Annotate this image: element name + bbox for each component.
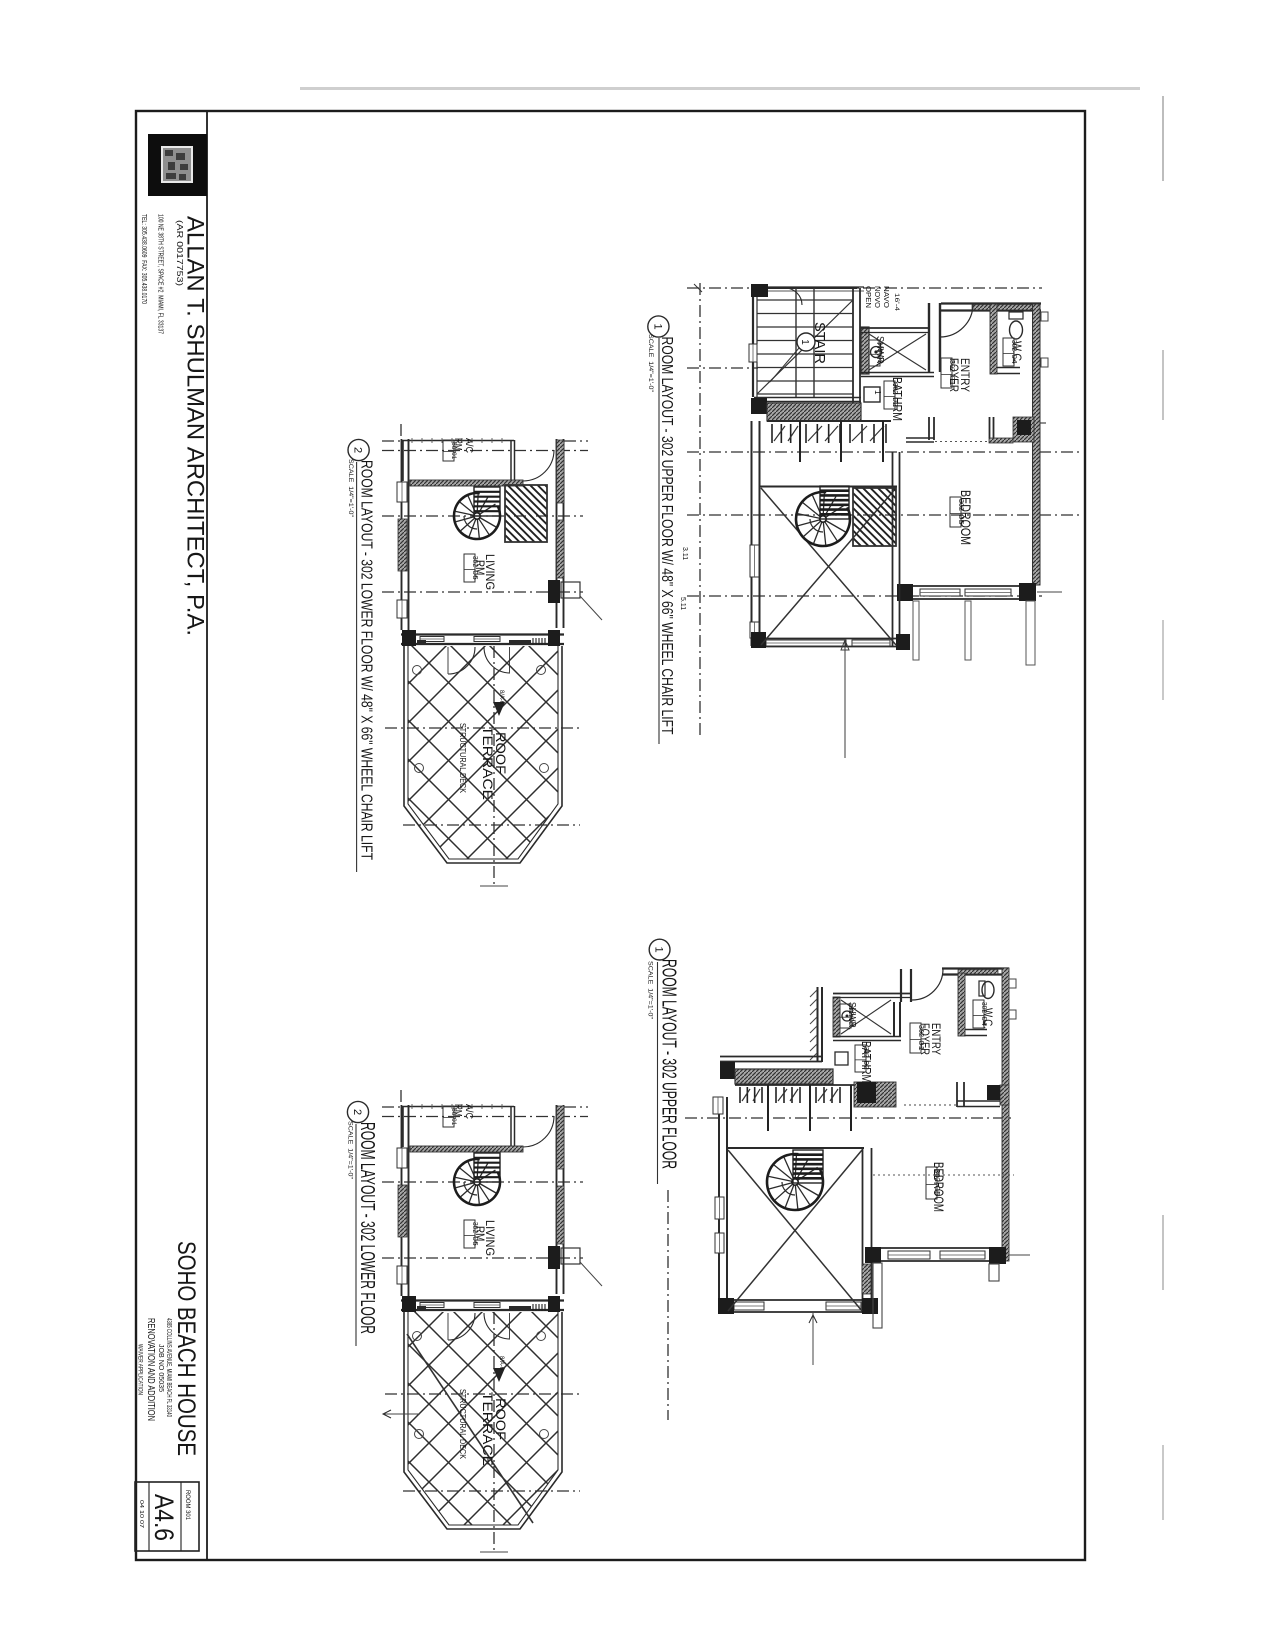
svg-text:ROOM LAYOUT - 302 LOWER FLOOR: ROOM LAYOUT - 302 LOWER FLOOR xyxy=(356,1122,378,1334)
svg-text:302: 302 xyxy=(948,360,955,372)
svg-text:02: 02 xyxy=(891,397,898,407)
svg-text:2: 2 xyxy=(352,447,364,453)
svg-text:5.11: 5.11 xyxy=(679,597,686,610)
svg-text:1: 1 xyxy=(799,339,810,345)
svg-text:06: 06 xyxy=(471,1236,478,1246)
svg-text:01: 01 xyxy=(917,1040,924,1050)
svg-text:SOHO BEACH HOUSE: SOHO BEACH HOUSE xyxy=(172,1241,200,1456)
svg-text:RM.: RM. xyxy=(452,438,463,453)
svg-text:1: 1 xyxy=(651,323,663,329)
svg-text:1: 1 xyxy=(653,947,665,953)
svg-text:302: 302 xyxy=(980,1002,987,1013)
svg-text:OPEN: OPEN xyxy=(864,286,871,308)
svg-text:302: 302 xyxy=(917,1025,924,1037)
svg-text:302: 302 xyxy=(862,1047,869,1058)
svg-text:302: 302 xyxy=(471,1222,478,1233)
svg-text:(AR 0017753): (AR 0017753) xyxy=(175,220,184,286)
svg-text:302: 302 xyxy=(891,383,898,394)
svg-text:04: 04 xyxy=(980,1016,987,1026)
svg-text:ROOM LAYOUT - 302 LOWER FLOOR: ROOM LAYOUT - 302 LOWER FLOOR W/ 48" X 6… xyxy=(358,460,375,860)
svg-text:100 NE 38TH STREET, SPACE #2: 100 NE 38TH STREET, SPACE #2 MIAMI, FL 3… xyxy=(157,214,164,334)
svg-text:ROOM LAYOUT - 302 UPPER FLOOR: ROOM LAYOUT - 302 UPPER FLOOR W/ 48" X 6… xyxy=(658,337,675,735)
svg-text:302: 302 xyxy=(957,499,964,511)
svg-text:SCALE 1/4"=1'-0": SCALE 1/4"=1'-0" xyxy=(647,334,653,392)
svg-text:ALLAN T. SHULMAN ARCHITECT, P.: ALLAN T. SHULMAN ARCHITECT, P.A. xyxy=(182,216,209,636)
svg-text:NAVO: NAVO xyxy=(882,286,889,309)
svg-text:302: 302 xyxy=(1010,340,1017,351)
svg-text:RENOVATION AND ADDITION: RENOVATION AND ADDITION xyxy=(145,1318,156,1421)
svg-text:1: 1 xyxy=(873,390,882,395)
svg-text:05: 05 xyxy=(933,1186,940,1197)
svg-text:STRUCTURAL DECK: STRUCTURAL DECK xyxy=(458,1389,467,1460)
svg-text:04 10 07: 04 10 07 xyxy=(138,1500,144,1528)
svg-text:NOVO: NOVO xyxy=(873,286,880,309)
svg-text:JOB NO 05035: JOB NO 05035 xyxy=(157,1344,164,1392)
svg-text:8/A-6: 8/A-6 xyxy=(498,1356,504,1371)
svg-text:3.11: 3.11 xyxy=(681,547,688,560)
svg-text:SCALE 1/4"=1'-0": SCALE 1/4"=1'-0" xyxy=(347,1121,353,1179)
svg-text:TERRACE: TERRACE xyxy=(480,1392,496,1466)
svg-text:302: 302 xyxy=(933,1169,940,1182)
svg-text:4385 COLLINS AVENUE, MIAMI BEA: 4385 COLLINS AVENUE, MIAMI BEACH FL 3314… xyxy=(165,1318,172,1417)
svg-text:8/A-6: 8/A-6 xyxy=(498,690,504,705)
svg-text:01: 01 xyxy=(450,1118,456,1126)
svg-text:RM.: RM. xyxy=(452,1104,463,1119)
svg-text:A4.6: A4.6 xyxy=(149,1494,179,1541)
svg-text:302: 302 xyxy=(471,556,478,567)
svg-text:01: 01 xyxy=(948,375,955,385)
svg-text:302: 302 xyxy=(847,1006,854,1015)
svg-text:2: 2 xyxy=(351,1109,363,1115)
svg-text:01: 01 xyxy=(450,452,456,460)
svg-text:03: 03 xyxy=(847,1018,854,1027)
svg-text:03: 03 xyxy=(876,355,883,364)
svg-text:SCALE 1/4"=1'-0": SCALE 1/4"=1'-0" xyxy=(347,459,353,517)
svg-text:ROOM LAYOUT - 302 UPPER FLOOR: ROOM LAYOUT - 302 UPPER FLOOR xyxy=(658,959,680,1169)
svg-text:05: 05 xyxy=(957,514,964,524)
svg-text:04: 04 xyxy=(1010,354,1017,364)
svg-text:TEL: 305.438.0609 FAX: 305.43: TEL: 305.438.0609 FAX: 305.438.0170 xyxy=(140,214,147,304)
svg-text:WAIVER APPLICATION: WAIVER APPLICATION xyxy=(137,1344,143,1395)
svg-text:16'-4: 16'-4 xyxy=(893,293,899,312)
svg-text:02: 02 xyxy=(862,1061,869,1070)
svg-text:TERRACE: TERRACE xyxy=(480,726,496,800)
svg-text:ROOM 301: ROOM 301 xyxy=(184,1490,190,1521)
svg-text:SCALE 1/4"=1'-0": SCALE 1/4"=1'-0" xyxy=(647,961,654,1020)
svg-text:06: 06 xyxy=(471,570,478,580)
svg-text:STAIR: STAIR xyxy=(811,322,828,364)
svg-text:302: 302 xyxy=(876,342,883,352)
svg-text:STRUCTURAL DECK: STRUCTURAL DECK xyxy=(458,723,467,794)
